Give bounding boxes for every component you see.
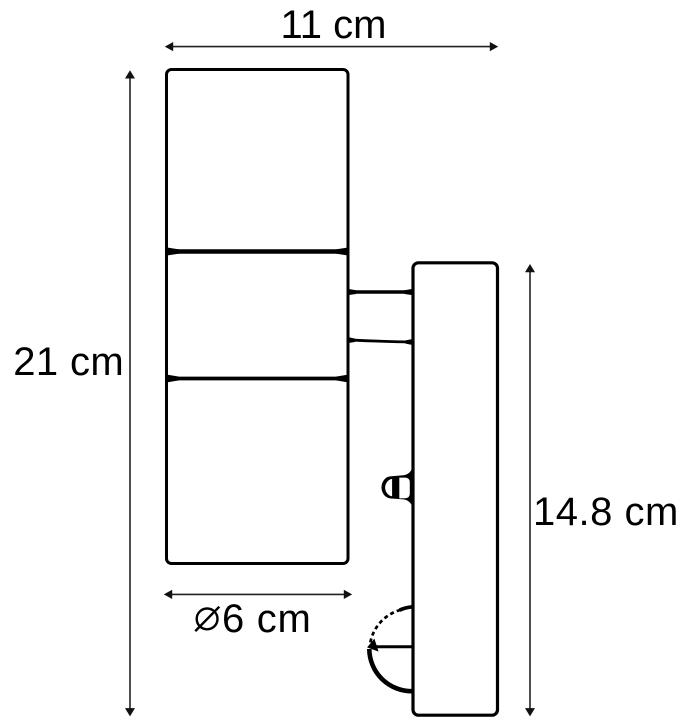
svg-text:11 cm: 11 cm <box>281 3 387 47</box>
svg-text:21 cm: 21 cm <box>13 340 124 384</box>
svg-text:6 cm: 6 cm <box>222 597 311 641</box>
svg-text:14.8 cm: 14.8 cm <box>533 490 679 534</box>
